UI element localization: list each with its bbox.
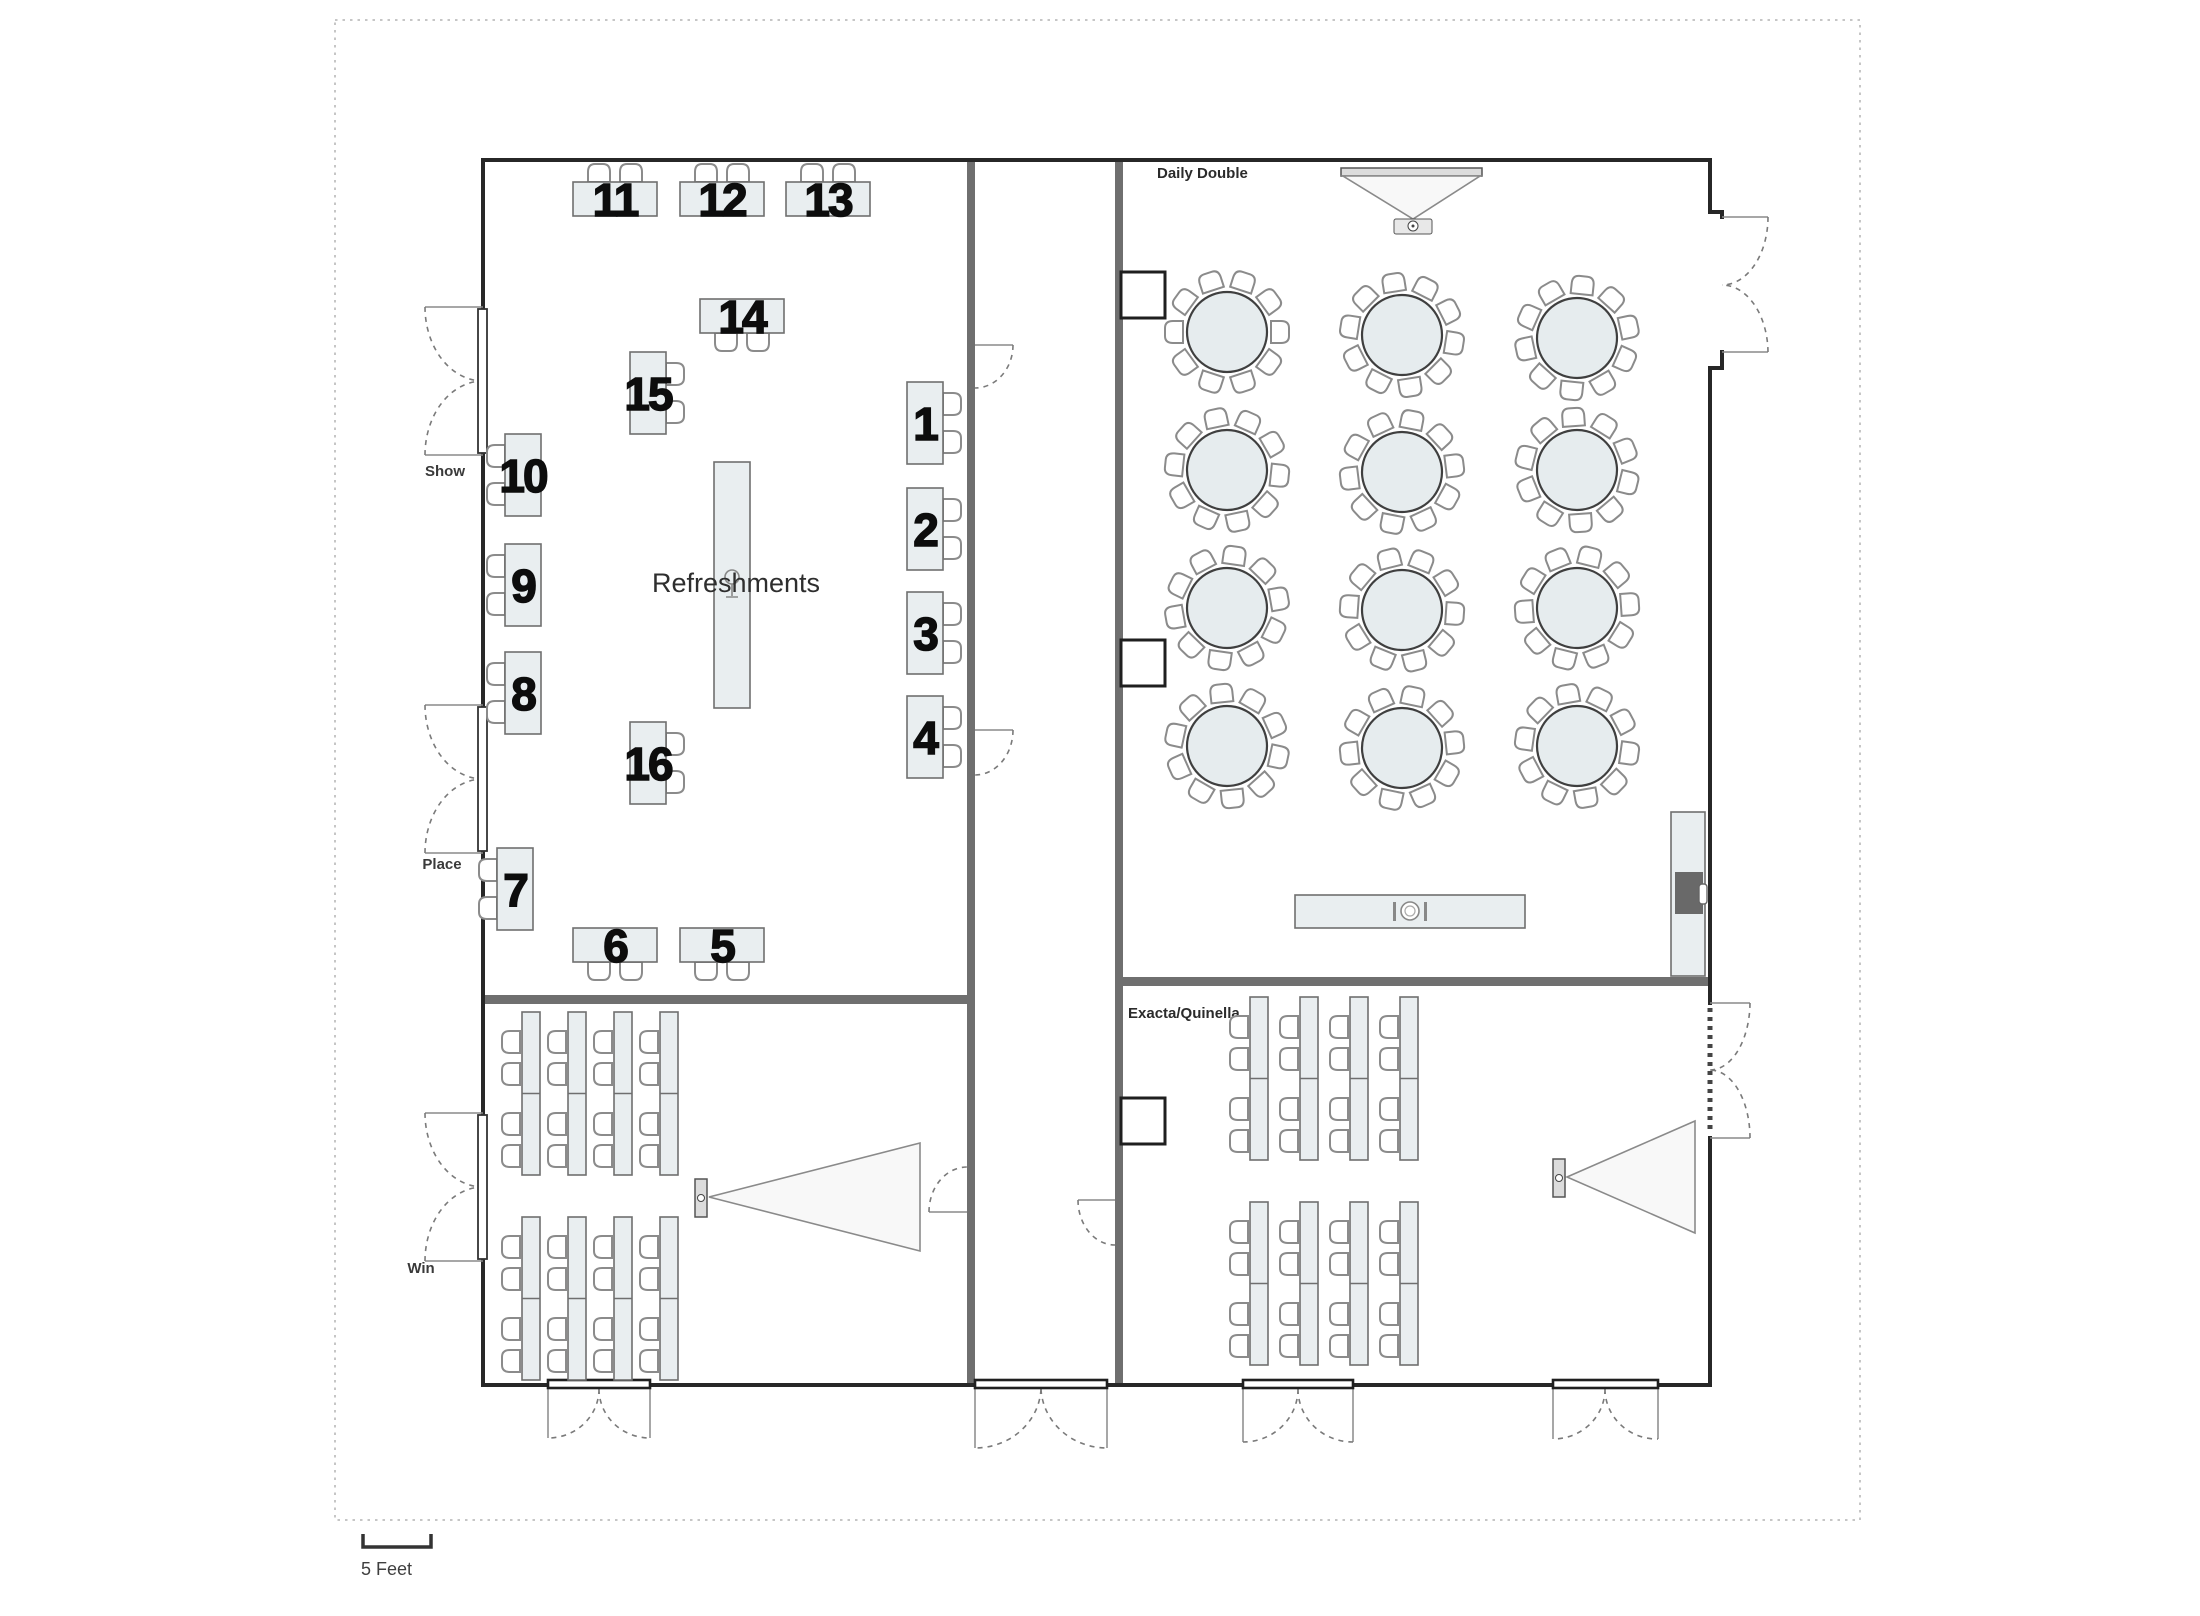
- corridor-left-wall: [967, 160, 975, 1385]
- table-5: 5: [680, 920, 764, 980]
- projection-screen-exacta: [1553, 1121, 1695, 1233]
- table-14-label: 14: [718, 291, 768, 343]
- double-door-corridor-bottom: [975, 1380, 1107, 1448]
- table-16: 16: [624, 722, 684, 804]
- wall-opening-box-1: [1121, 272, 1165, 318]
- double-door-win-bottom: [548, 1380, 650, 1438]
- table-2: 2: [907, 488, 961, 570]
- table-13: 13: [786, 164, 870, 226]
- table-9: 9: [487, 544, 541, 626]
- table-6-label: 6: [603, 920, 627, 972]
- table-6: 6: [573, 920, 657, 980]
- floor-plan-page: Show Place Win: [0, 0, 2200, 1616]
- room-win: [502, 1012, 920, 1380]
- scale-indicator: 5 Feet: [361, 1534, 431, 1579]
- double-door-show: [425, 307, 487, 455]
- table-9-label: 9: [511, 560, 535, 612]
- av-table: [1671, 812, 1707, 976]
- double-door-daily-double-right: [1722, 217, 1768, 352]
- table-3: 3: [907, 592, 961, 674]
- scale-label: 5 Feet: [361, 1559, 412, 1579]
- table-10: 10: [487, 434, 547, 516]
- table-8: 8: [487, 652, 541, 734]
- table-7: 7: [479, 848, 533, 930]
- table-16-label: 16: [624, 738, 672, 790]
- exacta-corridor-door: [1078, 1200, 1115, 1245]
- double-door-place: [425, 705, 487, 853]
- double-door-win: [425, 1113, 487, 1261]
- corridor-right-wall: [1115, 160, 1123, 1385]
- buffet-table: [1295, 895, 1525, 928]
- table-11: 11: [573, 164, 657, 226]
- table-11-label: 11: [593, 174, 639, 226]
- door-label-place: Place: [422, 856, 461, 873]
- corridor-door-middle: [975, 730, 1013, 775]
- room-daily-double: Daily Double: [1153, 165, 1707, 976]
- table-15-label: 15: [624, 368, 673, 420]
- double-door-exacta-bottom-left: [1243, 1380, 1353, 1442]
- left-divider-wall: [483, 995, 967, 1004]
- table-12: 12: [680, 164, 764, 226]
- room-refreshments: 11 12 13 14 15 16 10: [479, 164, 961, 980]
- door-label-show: Show: [425, 463, 465, 480]
- table-13-label: 13: [804, 174, 852, 226]
- exacta-quinella-label: Exacta/Quinella: [1128, 1005, 1240, 1022]
- table-8-label: 8: [511, 668, 536, 720]
- right-divider-wall: [1115, 977, 1712, 986]
- scale-bracket-icon: [363, 1534, 431, 1547]
- table-7-label: 7: [503, 864, 527, 916]
- table-15: 15: [624, 352, 684, 434]
- table-10-label: 10: [499, 450, 547, 502]
- table-14: 14: [700, 291, 784, 351]
- win-room-corridor-door: [929, 1167, 967, 1212]
- table-2-label: 2: [913, 504, 937, 556]
- wall-opening-box-2: [1121, 640, 1165, 686]
- double-door-exacta-right: [1710, 1003, 1750, 1138]
- projector-icon: [1394, 219, 1432, 234]
- refreshments-label: Refreshments: [652, 568, 820, 598]
- table-4: 4: [907, 696, 961, 778]
- projection-screen-win: [695, 1143, 920, 1251]
- table-5-label: 5: [710, 920, 735, 972]
- page-border: [335, 20, 1860, 1520]
- projection-screen-daily-double: [1341, 168, 1482, 234]
- table-1-label: 1: [913, 398, 938, 450]
- projector-icon: [698, 1195, 705, 1202]
- projection-screen-icon: [1341, 168, 1482, 176]
- wall-opening-box-3: [1121, 1098, 1165, 1144]
- double-door-exacta-bottom-right: [1553, 1380, 1658, 1439]
- door-label-win: Win: [407, 1260, 434, 1277]
- projector-icon: [1556, 1175, 1563, 1182]
- room-exacta-quinella: Exacta/Quinella: [1128, 997, 1695, 1365]
- table-3-label: 3: [913, 608, 937, 660]
- daily-double-label: Daily Double: [1157, 165, 1248, 182]
- table-4-label: 4: [913, 712, 939, 764]
- round-tables-grid: [1153, 264, 1652, 820]
- table-12-label: 12: [698, 174, 746, 226]
- corridor-door-upper: [975, 345, 1013, 388]
- floor-plan: Show Place Win: [0, 0, 2200, 1616]
- table-1: 1: [907, 382, 961, 464]
